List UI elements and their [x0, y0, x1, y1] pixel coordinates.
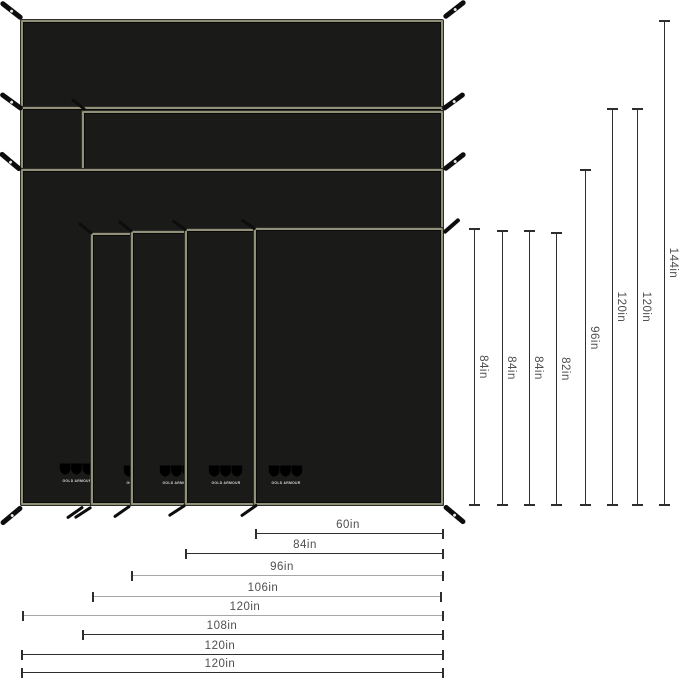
horizontal-dimension-120in: 120in	[22, 672, 443, 673]
corner-strap	[0, 91, 23, 111]
dimension-label: 60in	[336, 519, 360, 531]
vertical-dimension-84in: 84in	[502, 231, 503, 505]
dimension-label: 120in	[205, 658, 236, 670]
dimension-label: 84in	[505, 356, 517, 380]
gold-armour-logo: GOLD ARMOUR	[59, 462, 95, 484]
dimension-label: 84in	[532, 356, 544, 380]
corner-strap	[442, 503, 466, 524]
corner-strap	[442, 151, 466, 172]
tarp-60x84: GOLD ARMOUR	[254, 228, 443, 505]
horizontal-dimension-106in: 106in	[93, 596, 441, 597]
corner-strap	[0, 0, 23, 20]
vertical-dimension-96in: 96in	[585, 170, 586, 505]
dimension-label: 108in	[207, 620, 238, 632]
horizontal-dimension-96in: 96in	[132, 575, 443, 576]
horizontal-dimension-120in: 120in	[22, 654, 443, 655]
vertical-dimension-82in: 82in	[556, 233, 557, 505]
dimension-label: 82in	[559, 357, 571, 381]
corner-strap	[113, 504, 131, 518]
logo-text: GOLD ARMOUR	[212, 481, 241, 485]
horizontal-dimension-120in: 120in	[23, 615, 443, 616]
logo-shields-icon	[209, 466, 242, 477]
corner-strap	[168, 503, 186, 516]
logo-shields-icon	[60, 464, 93, 475]
dimension-label: 120in	[205, 640, 236, 652]
corner-strap	[442, 0, 466, 19]
corner-strap	[441, 91, 466, 111]
dimension-label: 84in	[477, 355, 489, 379]
logo-text: GOLD ARMOUR	[63, 479, 92, 483]
horizontal-dimension-84in: 84in	[186, 553, 443, 554]
dimension-label: 106in	[248, 582, 279, 594]
logo-text: GOLD ARMOUR	[272, 481, 301, 485]
product-dimension-diagram: GOLD ARMOUR GOLD ARMOUR GOLD ARMOUR GOLD…	[0, 0, 679, 681]
dimension-label: 144in	[667, 248, 679, 279]
dimension-label: 120in	[615, 292, 627, 323]
corner-strap	[0, 504, 23, 525]
corner-strap	[240, 503, 258, 517]
logo-shields-icon	[269, 466, 302, 477]
dimension-label: 96in	[270, 561, 294, 573]
dimension-label: 120in	[230, 601, 261, 613]
gold-armour-logo: GOLD ARMOUR	[268, 464, 304, 486]
vertical-dimension-120in: 120in	[612, 109, 613, 505]
vertical-dimension-144in: 144in	[664, 21, 665, 505]
horizontal-dimension-60in: 60in	[256, 533, 443, 534]
vertical-dimension-84in: 84in	[474, 229, 475, 505]
vertical-dimension-84in: 84in	[529, 231, 530, 505]
dimension-label: 96in	[588, 326, 600, 350]
corner-strap	[0, 150, 22, 171]
vertical-dimension-120in: 120in	[637, 109, 638, 505]
gold-armour-logo: GOLD ARMOUR	[208, 464, 244, 486]
dimension-label: 84in	[293, 539, 317, 551]
horizontal-dimension-108in: 108in	[83, 634, 443, 635]
dimension-label: 120in	[640, 292, 652, 323]
corner-strap	[442, 218, 460, 235]
